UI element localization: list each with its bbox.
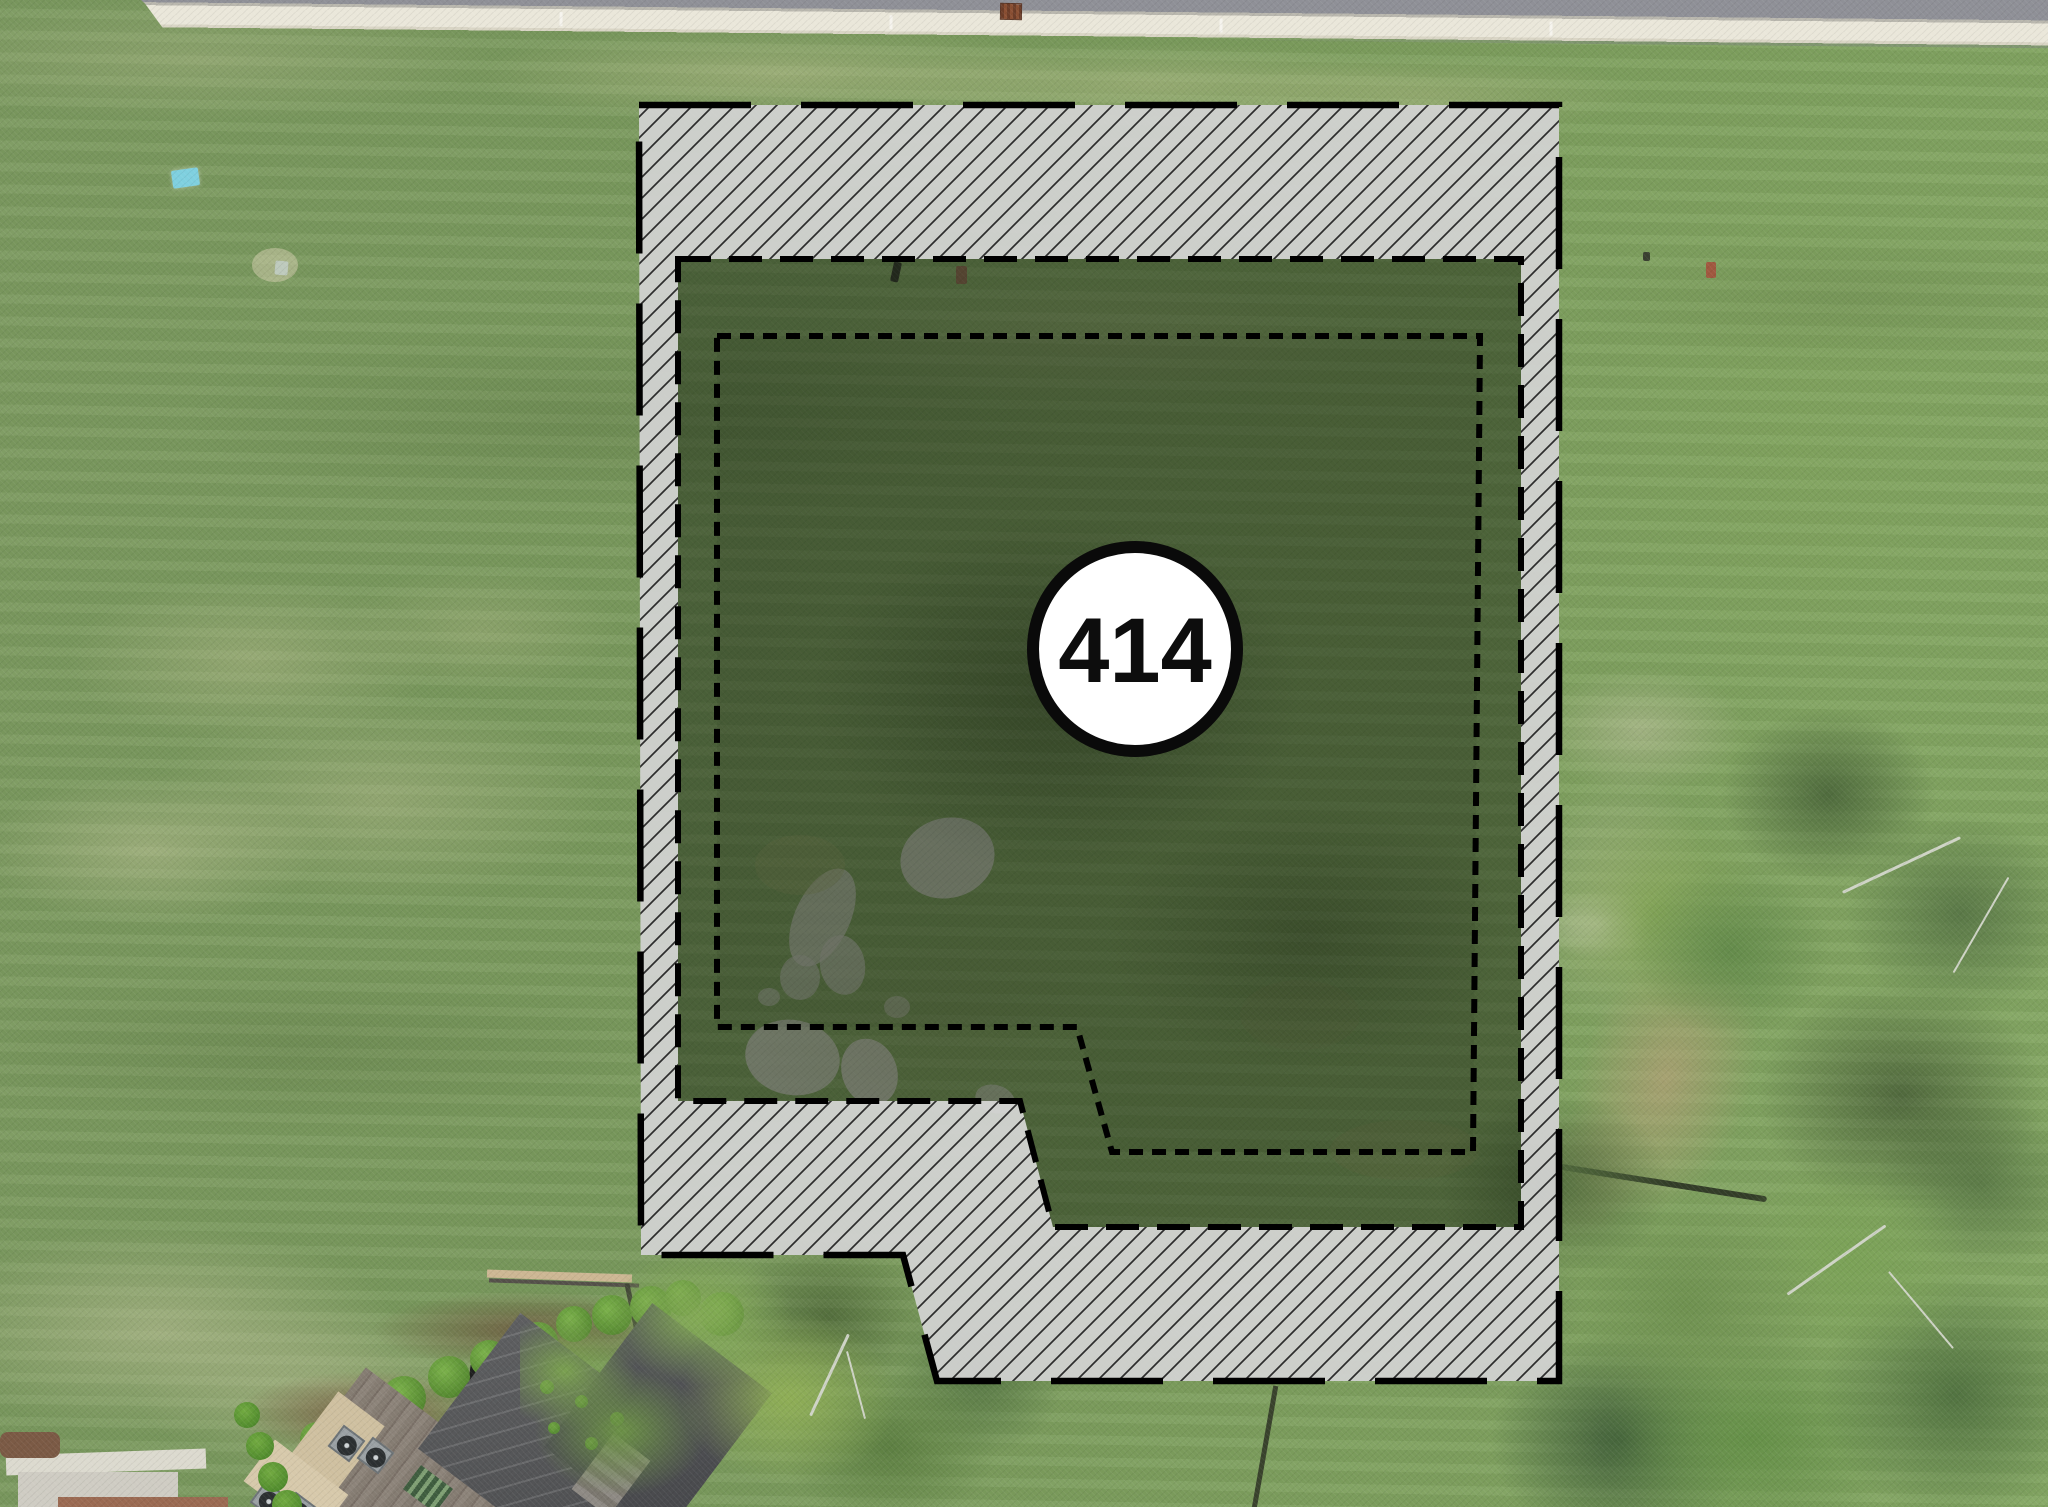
lot-number-text: 414 [1058,600,1212,702]
aerial-lot-map: 414 [0,0,2048,1507]
lot-overlay: 414 [0,0,2048,1507]
lot-number-badge[interactable]: 414 [1033,547,1237,751]
